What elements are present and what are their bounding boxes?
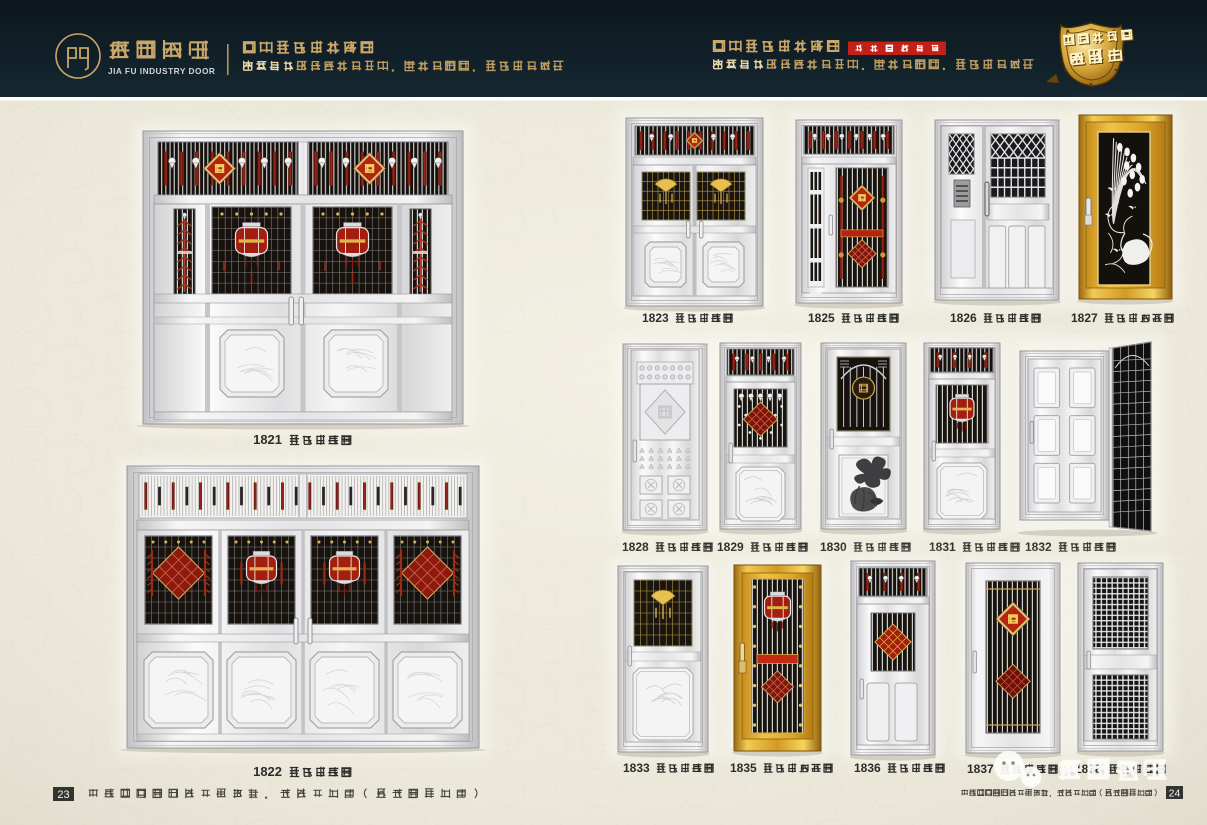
svg-text:1830: 1830	[820, 540, 847, 554]
svg-text:1829: 1829	[717, 540, 744, 554]
svg-text:1836: 1836	[854, 761, 881, 775]
svg-text:1822: 1822	[253, 764, 282, 779]
svg-text:23: 23	[57, 789, 69, 801]
svg-text:1828: 1828	[622, 540, 649, 554]
svg-text:1831: 1831	[929, 540, 956, 554]
svg-text:1827: 1827	[1071, 311, 1098, 325]
svg-text:1832: 1832	[1025, 540, 1052, 554]
svg-text:1826: 1826	[950, 311, 977, 325]
svg-text:1833: 1833	[623, 761, 650, 775]
svg-text:JIA FU INDUSTRY DOOR: JIA FU INDUSTRY DOOR	[108, 66, 215, 76]
svg-text:1823: 1823	[642, 311, 669, 325]
svg-text:24: 24	[1169, 788, 1181, 800]
svg-text:1835: 1835	[730, 761, 757, 775]
svg-text:1837: 1837	[967, 762, 994, 776]
svg-text:1825: 1825	[808, 311, 835, 325]
svg-text:1821: 1821	[253, 432, 282, 447]
